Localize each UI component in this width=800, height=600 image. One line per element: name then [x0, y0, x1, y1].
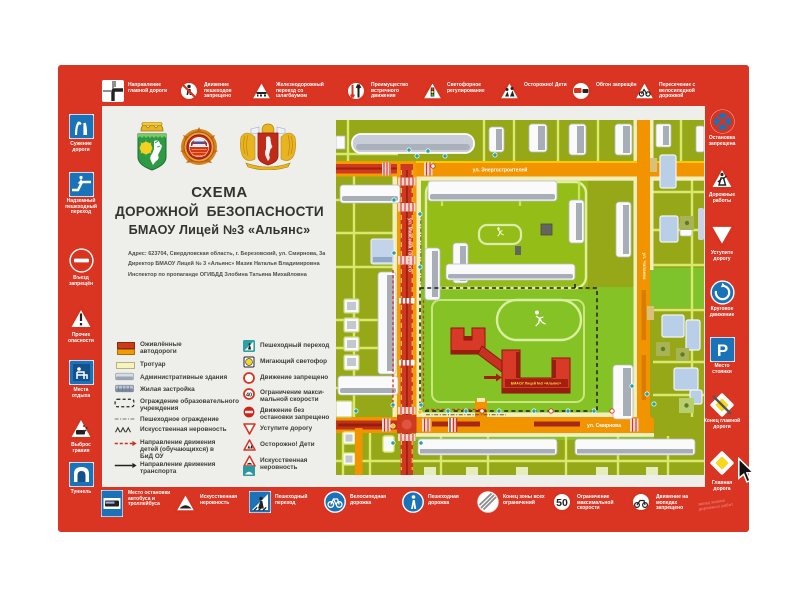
svg-text:ул. Максима Горького: ул. Максима Горького	[407, 218, 413, 272]
svg-text:P: P	[717, 341, 728, 360]
svg-text:ул. Энергостроителей: ул. Энергостроителей	[473, 167, 528, 174]
svg-text:40: 40	[246, 392, 252, 398]
svg-text:ул. Смирнова: ул. Смирнова	[587, 423, 621, 429]
svg-text:50: 50	[556, 497, 568, 509]
svg-text:ул. Чапаева: ул. Чапаева	[642, 253, 647, 280]
svg-text:БМАОУ Лицей №3 «Альянс»: БМАОУ Лицей №3 «Альянс»	[511, 382, 562, 386]
